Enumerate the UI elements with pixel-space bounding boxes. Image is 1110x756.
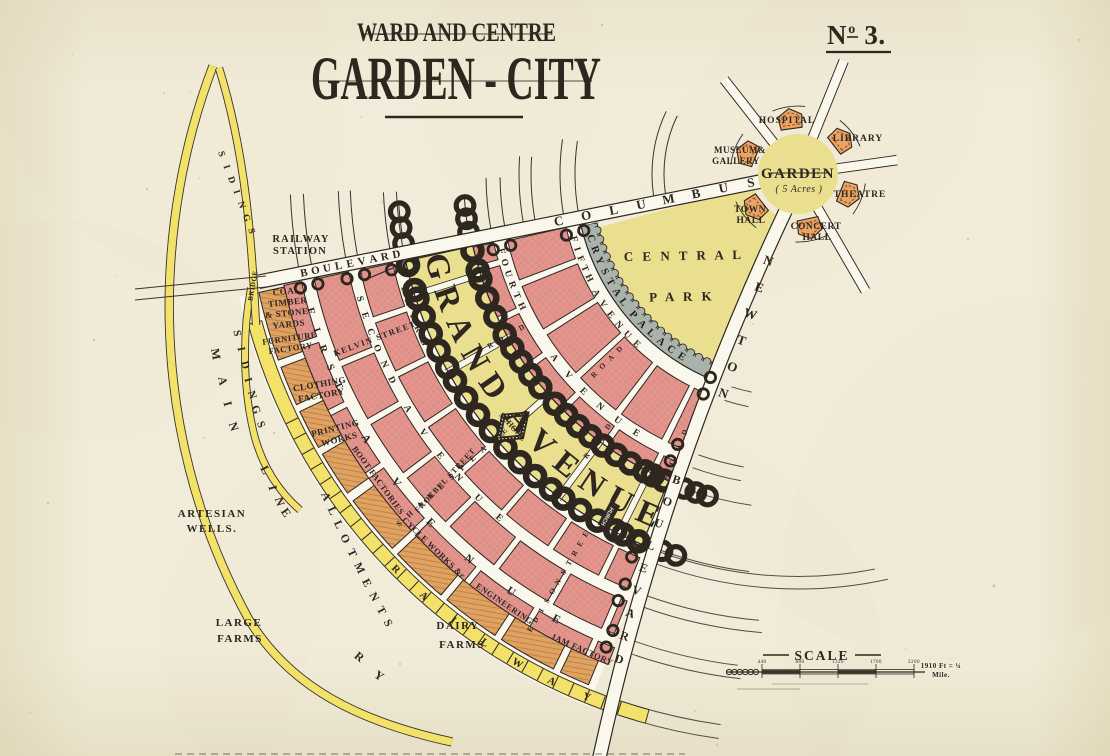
svg-text:TOWN: TOWN [734,205,766,215]
svg-text:N: N [827,20,847,50]
svg-text:P A R K: P A R K [649,288,715,304]
svg-text:1320: 1320 [832,660,844,665]
svg-text:880: 880 [796,660,805,665]
svg-text:HALL: HALL [737,216,766,226]
svg-text:M: M [208,347,224,361]
svg-text:HALL: HALL [803,233,832,243]
svg-text:WELLS.: WELLS. [187,523,238,535]
svg-text:GARDEN: GARDEN [761,166,835,182]
svg-text:440: 440 [758,660,767,665]
svg-text:CONCERT: CONCERT [791,222,842,232]
svg-text:WARD AND CENTRE: WARD AND CENTRE [357,18,556,47]
svg-text:Mile.: Mile. [932,671,950,679]
svg-text:GALLERY: GALLERY [712,156,760,166]
svg-text:C E N T R A L: C E N T R A L [624,247,744,264]
svg-text:FARMS: FARMS [217,633,263,645]
svg-text:1760: 1760 [870,660,882,665]
svg-text:LIBRARY: LIBRARY [833,134,883,144]
svg-text:ARTESIAN: ARTESIAN [178,508,246,520]
svg-text:o: o [848,22,856,37]
svg-text:( 5 Acres ): ( 5 Acres ) [776,184,823,195]
svg-text:GARDEN - CITY: GARDEN - CITY [311,46,601,113]
svg-text:RAILWAY: RAILWAY [272,234,329,245]
svg-text:THEATRE: THEATRE [834,190,887,200]
svg-text:MUSEUM&: MUSEUM& [714,145,766,155]
svg-text:1910 Ft = ¼: 1910 Ft = ¼ [921,662,962,670]
svg-text:HOSPITAL: HOSPITAL [759,116,815,126]
svg-text:DAIRY: DAIRY [436,620,479,632]
svg-text:2200: 2200 [908,660,920,665]
svg-text:STATION: STATION [273,246,327,257]
svg-text:LARGE: LARGE [216,617,263,629]
svg-text:3.: 3. [864,20,885,50]
